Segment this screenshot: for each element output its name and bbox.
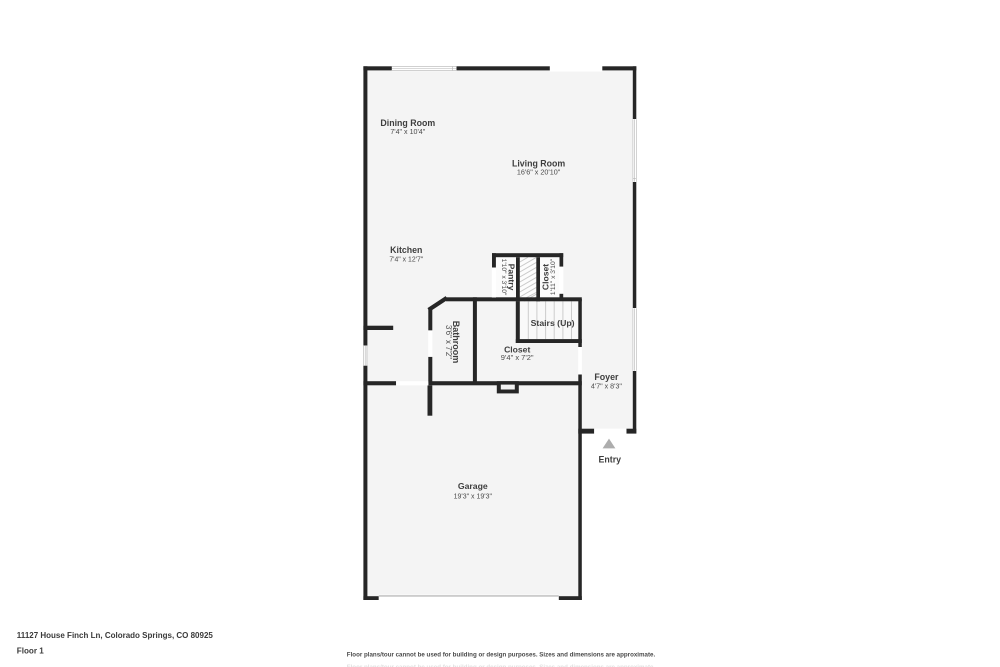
svg-text:4'7" x 8'3": 4'7" x 8'3" (591, 383, 622, 391)
svg-text:Stairs (Up): Stairs (Up) (531, 318, 575, 328)
svg-text:9'4" x 7'2": 9'4" x 7'2" (501, 353, 534, 362)
svg-text:Foyer: Foyer (594, 372, 619, 382)
svg-text:7'4" x 12'7": 7'4" x 12'7" (389, 256, 424, 263)
svg-text:Kitchen: Kitchen (390, 245, 422, 255)
svg-text:7'4" x 10'4": 7'4" x 10'4" (390, 128, 425, 136)
svg-text:19'3" x 19'3": 19'3" x 19'3" (454, 494, 493, 501)
svg-text:Floor 1: Floor 1 (17, 647, 44, 656)
svg-text:Floor plans/tour cannot be use: Floor plans/tour cannot be used for buil… (347, 651, 656, 658)
svg-text:16'6" x 20'10": 16'6" x 20'10" (517, 167, 561, 176)
svg-text:Closet: Closet (540, 264, 550, 290)
svg-text:Pantry: Pantry (507, 264, 517, 291)
svg-text:Dining Room: Dining Room (380, 118, 435, 128)
svg-text:Entry: Entry (599, 454, 622, 464)
svg-text:1'10" x 3'10": 1'10" x 3'10" (500, 259, 507, 296)
svg-text:11127 House Finch Ln, Colorado: 11127 House Finch Ln, Colorado Springs, … (17, 631, 214, 640)
svg-text:3'6" x 7'2": 3'6" x 7'2" (444, 325, 453, 359)
svg-text:Garage: Garage (458, 481, 488, 491)
svg-text:1'11" x 3'10": 1'11" x 3'10" (550, 258, 557, 295)
